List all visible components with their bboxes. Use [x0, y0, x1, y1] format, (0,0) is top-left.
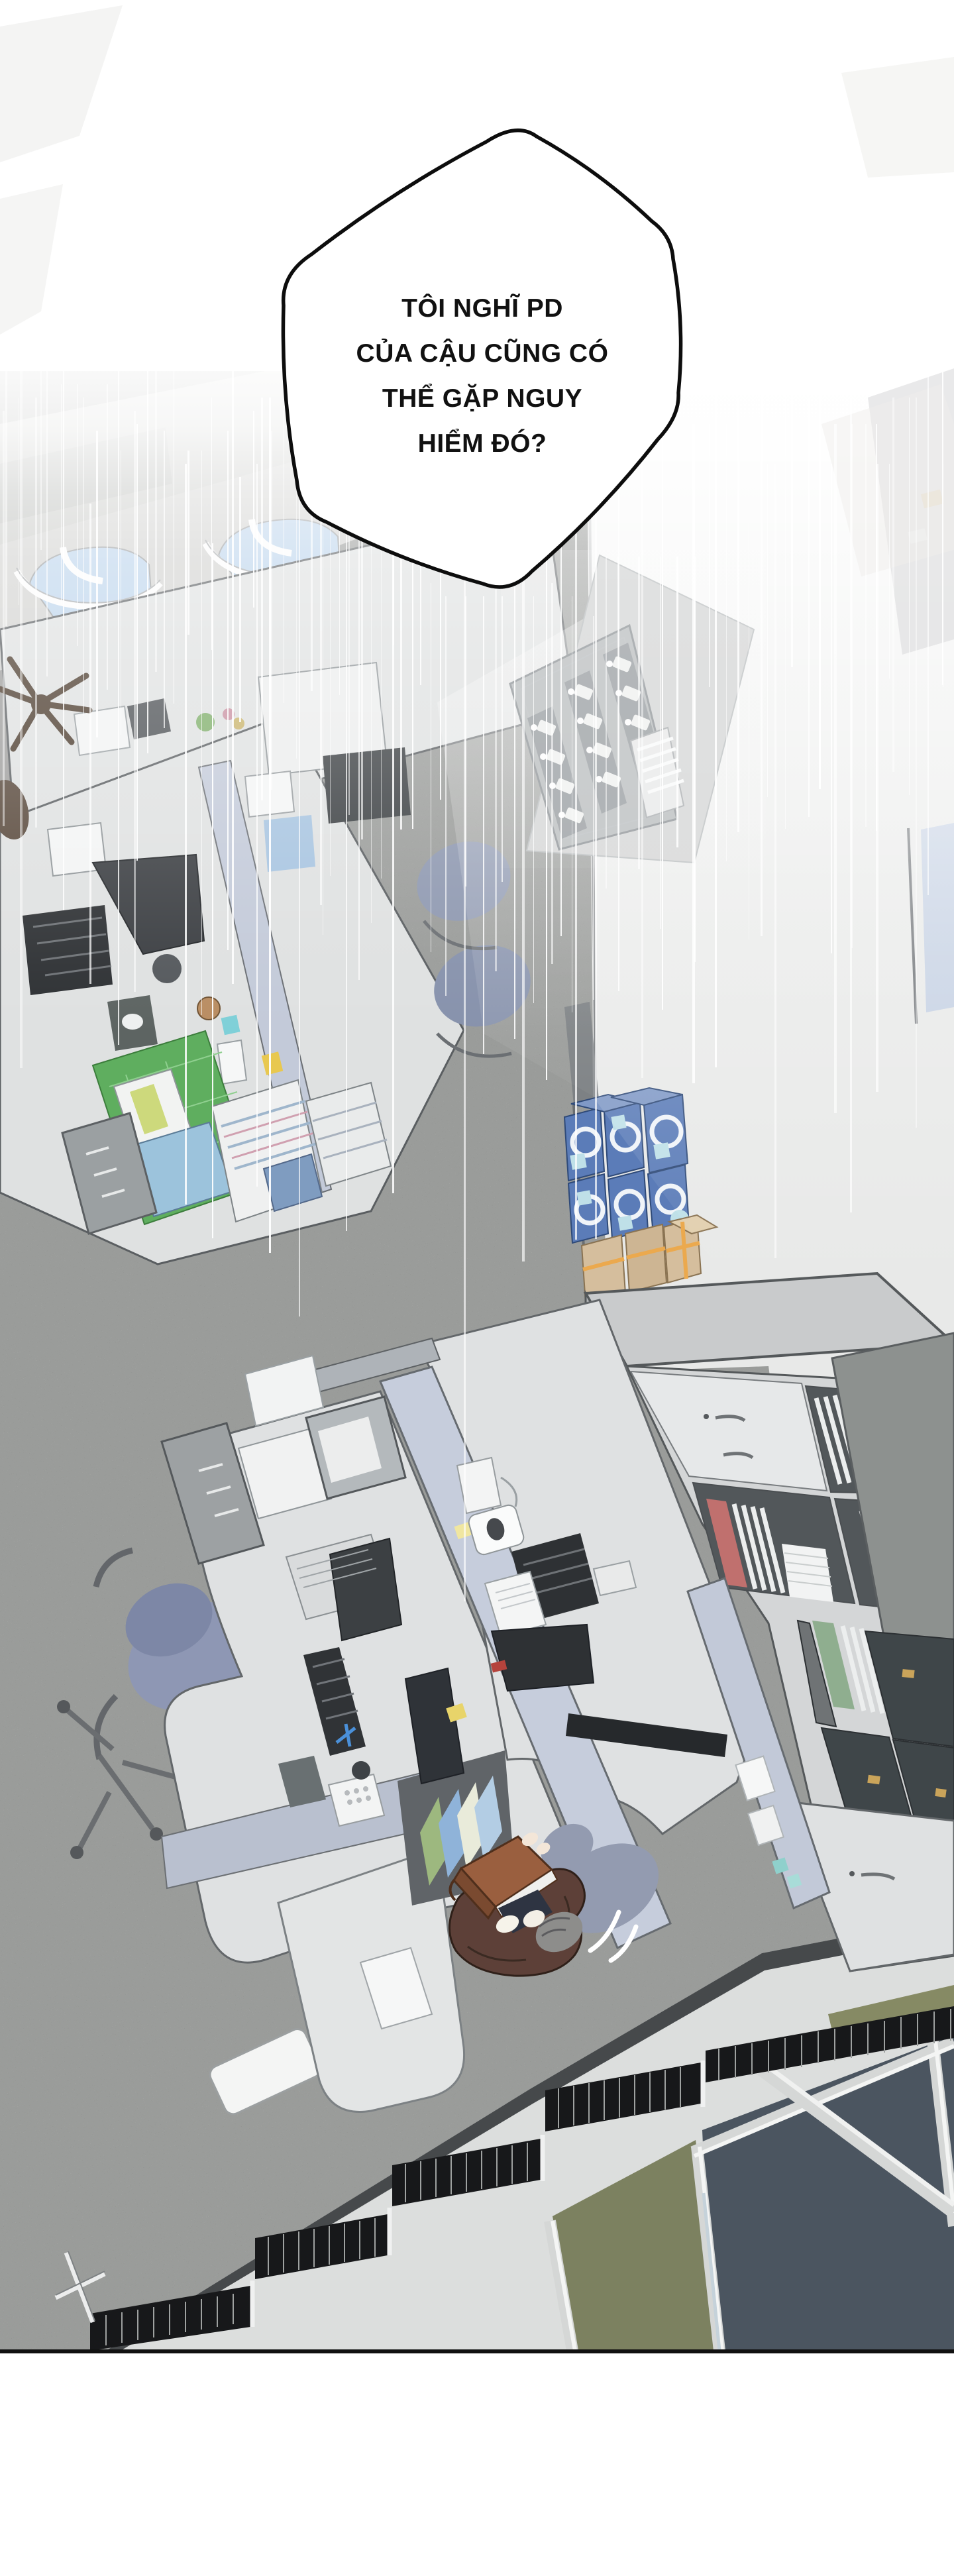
svg-text:TÔI NGHĨ PD: TÔI NGHĨ PD: [401, 293, 563, 323]
svg-text:THỂ GẶP NGUY: THỂ GẶP NGUY: [382, 383, 582, 413]
svg-text:CỦA CẬU CŨNG CÓ: CỦA CẬU CŨNG CÓ: [356, 339, 609, 368]
svg-text:HIỂM ĐÓ?: HIỂM ĐÓ?: [418, 428, 547, 458]
